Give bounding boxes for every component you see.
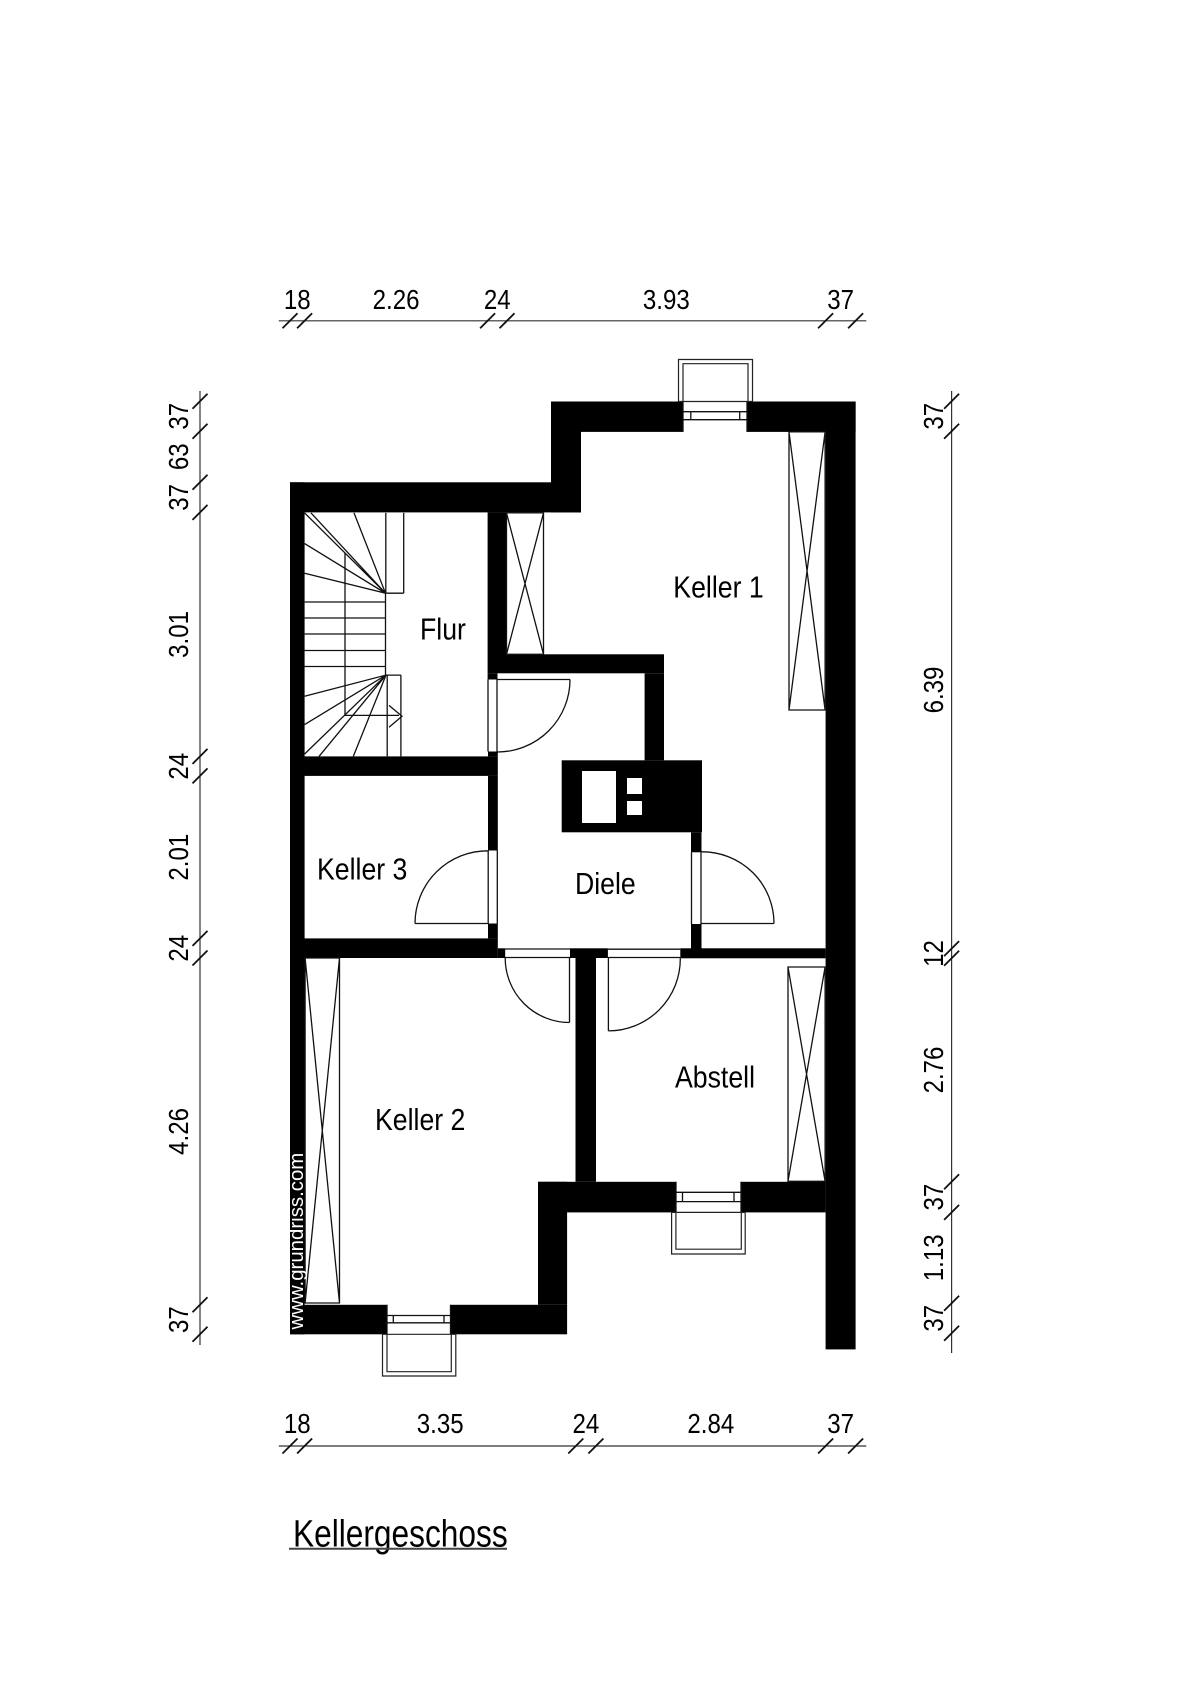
svg-text:37: 37 xyxy=(917,1184,949,1211)
svg-text:37: 37 xyxy=(162,484,194,511)
svg-text:2.26: 2.26 xyxy=(373,283,420,315)
svg-text:www.grundriss.com: www.grundriss.com xyxy=(286,1153,308,1331)
svg-text:24: 24 xyxy=(573,1407,600,1439)
svg-text:3.35: 3.35 xyxy=(417,1407,464,1439)
svg-text:1.13: 1.13 xyxy=(917,1234,949,1281)
svg-text:Keller 2: Keller 2 xyxy=(375,1103,465,1137)
svg-text:Abstell: Abstell xyxy=(675,1061,755,1095)
svg-text:37: 37 xyxy=(827,283,854,315)
svg-text:2.76: 2.76 xyxy=(917,1047,949,1094)
svg-text:37: 37 xyxy=(917,1305,949,1332)
svg-text:24: 24 xyxy=(162,935,194,962)
svg-text:37: 37 xyxy=(162,403,194,430)
svg-text:37: 37 xyxy=(827,1407,854,1439)
svg-text:24: 24 xyxy=(162,753,194,780)
svg-text:6.39: 6.39 xyxy=(917,667,949,714)
svg-text:4.26: 4.26 xyxy=(162,1108,194,1155)
svg-text:18: 18 xyxy=(284,283,311,315)
svg-text:2.01: 2.01 xyxy=(162,834,194,881)
svg-text:2.84: 2.84 xyxy=(687,1407,734,1439)
svg-text:Keller 3: Keller 3 xyxy=(317,853,407,887)
svg-text:37: 37 xyxy=(162,1306,194,1333)
svg-text:3.93: 3.93 xyxy=(643,283,690,315)
svg-text:3.01: 3.01 xyxy=(162,611,194,658)
svg-text:Flur: Flur xyxy=(420,612,466,646)
svg-text:18: 18 xyxy=(284,1407,311,1439)
svg-text:24: 24 xyxy=(484,283,511,315)
svg-text:Diele: Diele xyxy=(575,867,636,901)
svg-text:37: 37 xyxy=(917,403,949,430)
svg-text:12: 12 xyxy=(917,940,949,967)
svg-text:63: 63 xyxy=(162,443,194,470)
svg-text:Keller 1: Keller 1 xyxy=(673,570,763,604)
